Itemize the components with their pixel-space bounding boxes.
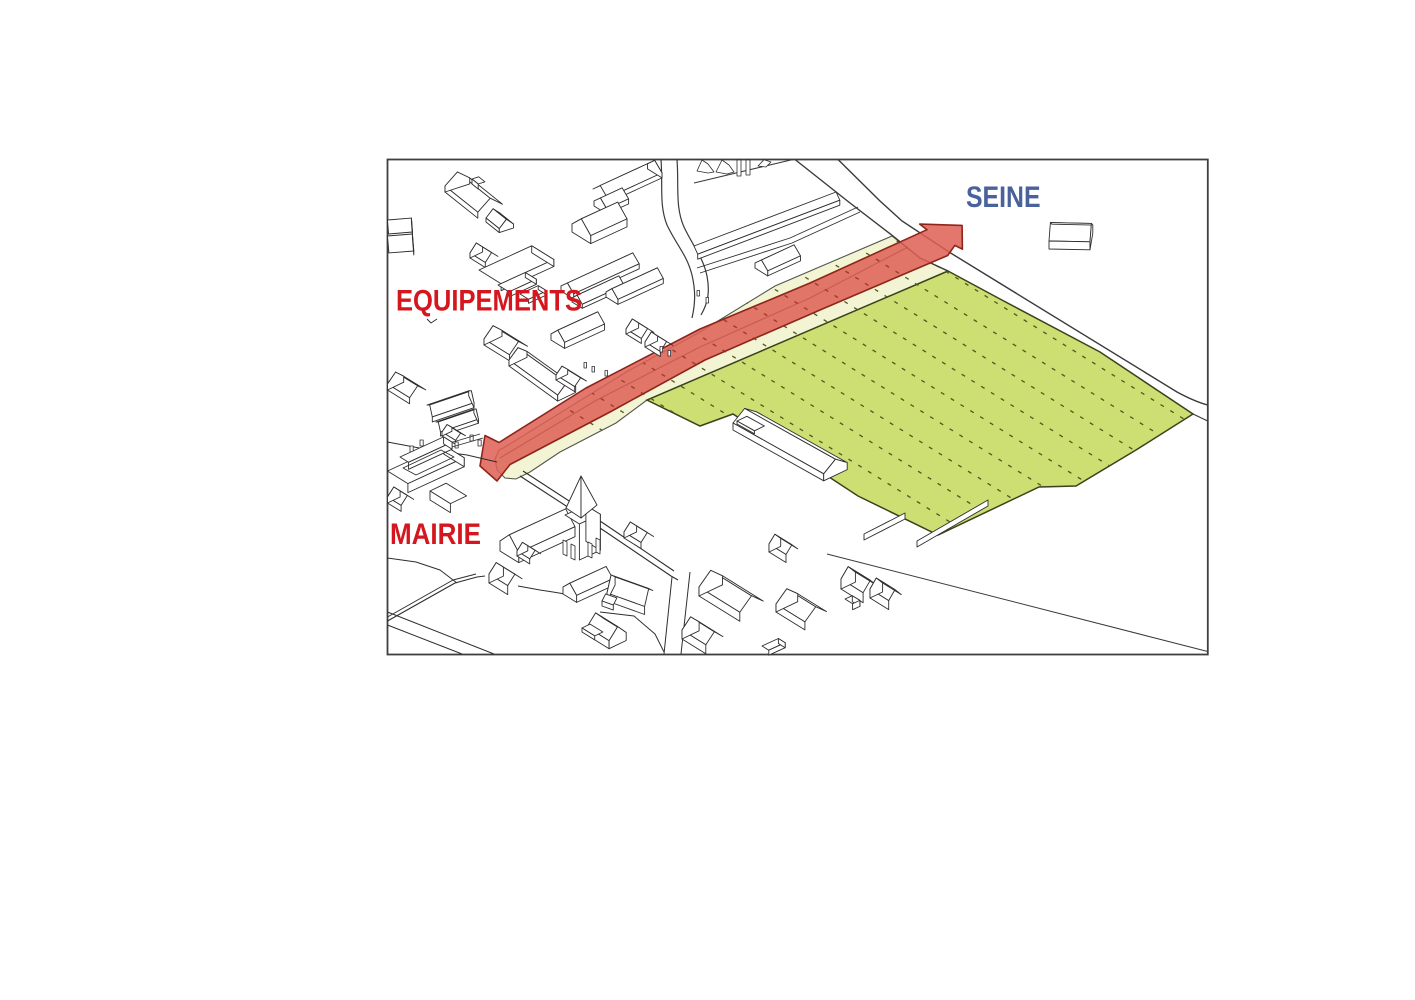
svg-text:EQUIPEMENTS: EQUIPEMENTS <box>396 284 582 317</box>
svg-text:MAIRIE: MAIRIE <box>390 518 481 551</box>
svg-text:SEINE: SEINE <box>966 181 1041 214</box>
